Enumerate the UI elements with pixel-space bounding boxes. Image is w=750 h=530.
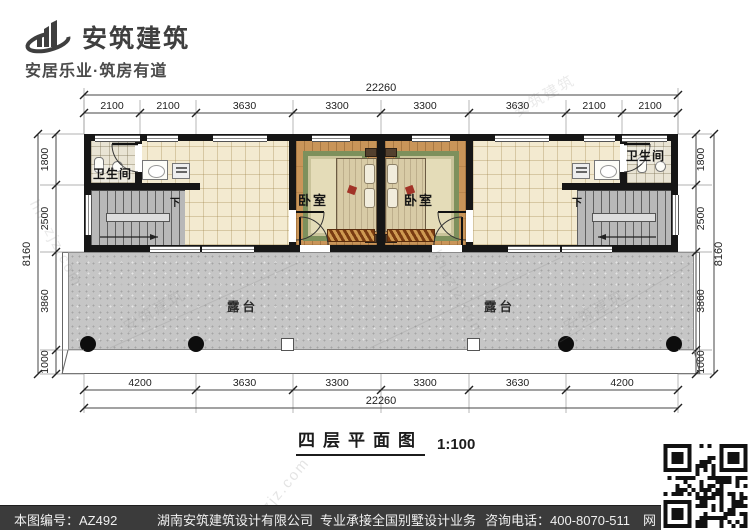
drawing-title: 四层平面图 bbox=[296, 426, 425, 456]
terrace-floor bbox=[68, 252, 694, 350]
pillow bbox=[387, 188, 398, 208]
window-icon bbox=[495, 135, 549, 142]
plan-number: 本图编号：AZ492 bbox=[14, 510, 117, 529]
svg-text:8160: 8160 bbox=[21, 242, 33, 266]
services-text: 专业承接全国别墅设计业务 bbox=[320, 510, 476, 529]
stove-grill-line bbox=[176, 167, 187, 169]
svg-text:22260: 22260 bbox=[366, 395, 397, 407]
pillow bbox=[364, 188, 375, 208]
qr-code bbox=[661, 442, 750, 530]
stove-grill-line bbox=[576, 167, 587, 169]
svg-text:3630: 3630 bbox=[506, 100, 530, 112]
svg-text:4200: 4200 bbox=[128, 377, 152, 389]
svg-text:2100: 2100 bbox=[582, 100, 606, 112]
svg-text:1800: 1800 bbox=[695, 148, 707, 172]
floor-plan-page: 安筑建筑 安居乐业·筑房有道 bbox=[0, 0, 750, 530]
stove-icon bbox=[172, 163, 190, 179]
window-icon bbox=[412, 135, 450, 142]
floor-mat bbox=[327, 229, 375, 242]
pillow bbox=[364, 164, 375, 184]
watermark: 安筑建筑 bbox=[509, 69, 578, 121]
svg-text:3630: 3630 bbox=[233, 377, 257, 389]
stair-rail-left bbox=[106, 213, 170, 222]
stove-grill-line bbox=[576, 171, 587, 173]
stairs-down-label-left: 下 bbox=[170, 194, 180, 209]
brand-tagline: 安居乐业·筑房有道 bbox=[25, 57, 167, 81]
svg-text:2500: 2500 bbox=[695, 207, 707, 231]
svg-text:2100: 2100 bbox=[156, 100, 180, 112]
brand-header: 安筑建筑 bbox=[22, 14, 190, 60]
window-icon bbox=[147, 135, 178, 142]
sink-counter-icon bbox=[142, 160, 168, 180]
bathroom-wall-left-bottom bbox=[84, 183, 200, 190]
drawing-scale: 1:100 bbox=[437, 436, 475, 456]
sink-bowl-icon bbox=[148, 165, 165, 178]
terrace-column bbox=[80, 336, 96, 352]
room-label-terrace-left: 露台 bbox=[227, 296, 258, 315]
window-icon bbox=[213, 135, 267, 142]
terrace-post bbox=[467, 338, 480, 351]
window-icon bbox=[584, 135, 615, 142]
qr-code-image bbox=[661, 442, 750, 530]
web-char: 网 bbox=[643, 510, 656, 529]
drawing-title-block: 四层平面图 1:100 bbox=[296, 426, 475, 456]
svg-text:2500: 2500 bbox=[39, 207, 51, 231]
pillow bbox=[387, 164, 398, 184]
room-label-bedroom-left: 卧室 bbox=[298, 190, 328, 209]
room-label-bathroom-left: 卫生间 bbox=[93, 165, 132, 182]
terrace-door-opening-right bbox=[432, 245, 462, 252]
phone-text: 咨询电话：400-8070-511 bbox=[485, 510, 630, 529]
terrace-column bbox=[666, 336, 682, 352]
room-label-terrace-right: 露台 bbox=[484, 296, 515, 315]
nightstand bbox=[385, 148, 397, 157]
terrace-column bbox=[558, 336, 574, 352]
window-icon bbox=[562, 246, 612, 253]
brand-logo-icon bbox=[22, 14, 76, 60]
svg-text:2100: 2100 bbox=[638, 100, 662, 112]
window-icon bbox=[312, 135, 350, 142]
sink-counter-icon bbox=[594, 160, 620, 180]
svg-text:3300: 3300 bbox=[325, 377, 349, 389]
bedroom-door-opening-left bbox=[289, 210, 296, 242]
svg-text:8160: 8160 bbox=[713, 242, 725, 266]
stove-grill-line bbox=[176, 171, 187, 173]
svg-text:2100: 2100 bbox=[100, 100, 124, 112]
svg-text:3630: 3630 bbox=[233, 100, 257, 112]
svg-text:3860: 3860 bbox=[39, 289, 51, 313]
room-label-bathroom-right: 卫生间 bbox=[626, 147, 665, 164]
window-icon bbox=[85, 195, 92, 235]
svg-text:4200: 4200 bbox=[610, 377, 634, 389]
svg-text:3300: 3300 bbox=[413, 377, 437, 389]
window-icon bbox=[672, 195, 679, 235]
room-label-bedroom-right: 卧室 bbox=[404, 190, 434, 209]
stove-icon bbox=[572, 163, 590, 179]
bathroom-wall-right-bottom bbox=[562, 183, 678, 190]
svg-text:22260: 22260 bbox=[366, 82, 397, 94]
terrace-door-opening-left bbox=[300, 245, 330, 252]
floor-mat bbox=[387, 229, 435, 242]
window-icon bbox=[95, 135, 140, 142]
footer-bar: 本图编号：AZ492 湖南安筑建筑设计有限公司 专业承接全国别墅设计业务 咨询电… bbox=[0, 505, 750, 530]
svg-text:3300: 3300 bbox=[413, 100, 437, 112]
stair-rail-right bbox=[592, 213, 656, 222]
company-name: 湖南安筑建筑设计有限公司 bbox=[157, 510, 313, 529]
bathroom-door-opening-left bbox=[135, 144, 142, 172]
sliding-door-icon bbox=[508, 246, 560, 253]
terrace-post bbox=[281, 338, 294, 351]
sliding-door-icon bbox=[202, 246, 254, 253]
brand-name: 安筑建筑 bbox=[82, 19, 190, 55]
stairs-down-label-right: 下 bbox=[572, 194, 582, 209]
bedroom-door-opening-right bbox=[466, 210, 473, 242]
svg-text:1000: 1000 bbox=[39, 350, 51, 374]
window-icon bbox=[150, 246, 200, 253]
terrace-column bbox=[188, 336, 204, 352]
window-icon bbox=[622, 135, 667, 142]
svg-text:3300: 3300 bbox=[325, 100, 349, 112]
svg-text:1800: 1800 bbox=[39, 148, 51, 172]
sink-bowl-icon bbox=[600, 165, 617, 178]
svg-text:3630: 3630 bbox=[506, 377, 530, 389]
nightstand bbox=[365, 148, 377, 157]
